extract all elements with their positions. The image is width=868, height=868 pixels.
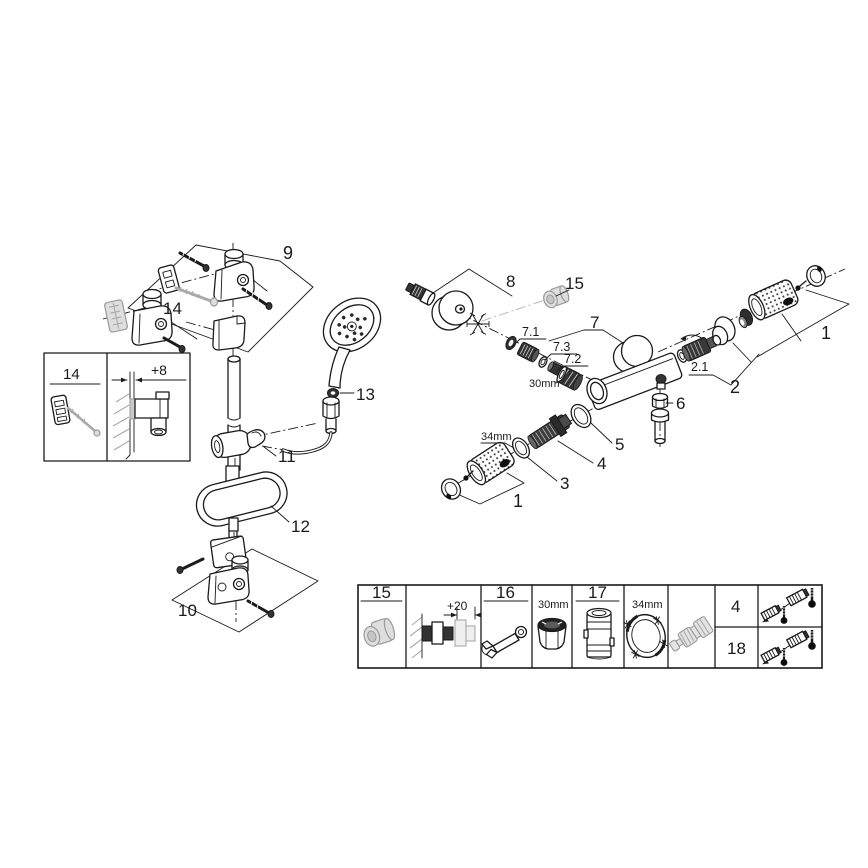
inset-wall-plug	[51, 395, 71, 425]
right-assembly	[404, 263, 828, 503]
wallplug-14-label: 14	[163, 299, 182, 318]
callout-8-label: 8	[506, 272, 515, 291]
exploded-parts-diagram-page: 9 14 13 11 12 10 14 +8 8 15 7 7.1 7.3 7.…	[0, 0, 868, 868]
screw-top	[180, 251, 209, 272]
knurled-cap-lower	[438, 440, 517, 503]
adapter-nipple	[517, 342, 541, 363]
table-34mm-label: 34mm	[632, 599, 663, 611]
ring-5-label: 5	[615, 435, 624, 454]
hand-shower	[283, 287, 391, 453]
callout-10-label: 10	[178, 601, 197, 620]
table-cell-17-label: 17	[588, 583, 607, 602]
callout-9-label: 9	[283, 243, 293, 263]
nut-30-icon	[538, 619, 566, 650]
dome-cap-lower	[438, 475, 465, 502]
table-row-4-label: 4	[731, 597, 740, 616]
extension-sleeve-icon	[584, 609, 614, 660]
nut-6-label: 6	[676, 394, 685, 413]
wall-plug-grey-14	[104, 299, 128, 332]
sub-7-1-label: 7.1	[522, 325, 539, 339]
soap-tray	[192, 466, 291, 531]
outlet-boss	[656, 375, 666, 384]
table-row-18-label: 18	[727, 639, 746, 658]
screw-left-bracket	[164, 338, 185, 353]
ring-5	[567, 401, 595, 431]
inset-14-label: 14	[63, 366, 80, 383]
ring-3-label: 3	[560, 474, 569, 493]
rail-holder-clamp	[213, 316, 245, 350]
table-cell-15-label: 15	[372, 583, 391, 602]
knurled-handle-upper	[745, 263, 828, 322]
callout-1-upper-label: 1	[821, 323, 831, 343]
inset-wall-section	[112, 372, 186, 459]
hose-nut	[323, 397, 339, 434]
callout-2-label: 2	[730, 377, 740, 397]
spindle-4-label: 4	[597, 454, 606, 473]
oring-13-label: 13	[356, 385, 375, 404]
exploded-diagram: 9 14 13 11 12 10 14 +8 8 15 7 7.1 7.3 7.…	[0, 0, 868, 868]
wall-union	[404, 281, 436, 306]
table-cell-16-label: 16	[496, 583, 515, 602]
slider-holder	[210, 429, 265, 459]
inset-screw	[68, 408, 100, 436]
sub-2-1-label: 2.1	[691, 360, 708, 374]
cap-15-label: 15	[565, 274, 584, 293]
table-30mm-label: 30mm	[538, 599, 569, 611]
screw-bottom-right	[248, 600, 274, 618]
inset-offset-label: +8	[151, 362, 167, 378]
outlet-nut-6	[653, 394, 668, 409]
cartridge-2	[680, 334, 717, 362]
screw-right	[243, 288, 272, 310]
screw-bottom-left	[177, 559, 203, 574]
parts-table: 15 +20 16 30mm 17 34mm 4 18	[358, 583, 822, 668]
callout-1-lower-label: 1	[513, 491, 523, 511]
size-34mm-label: 34mm	[481, 431, 512, 443]
callout-7-label: 7	[590, 313, 599, 332]
tray-12-label: 12	[291, 517, 310, 536]
left-assembly	[44, 250, 391, 618]
sub-7-2-label: 7.2	[564, 352, 581, 366]
screw-grey	[176, 287, 218, 306]
size-30mm-label: 30mm	[529, 378, 560, 390]
holder-11-label: 11	[278, 447, 296, 466]
